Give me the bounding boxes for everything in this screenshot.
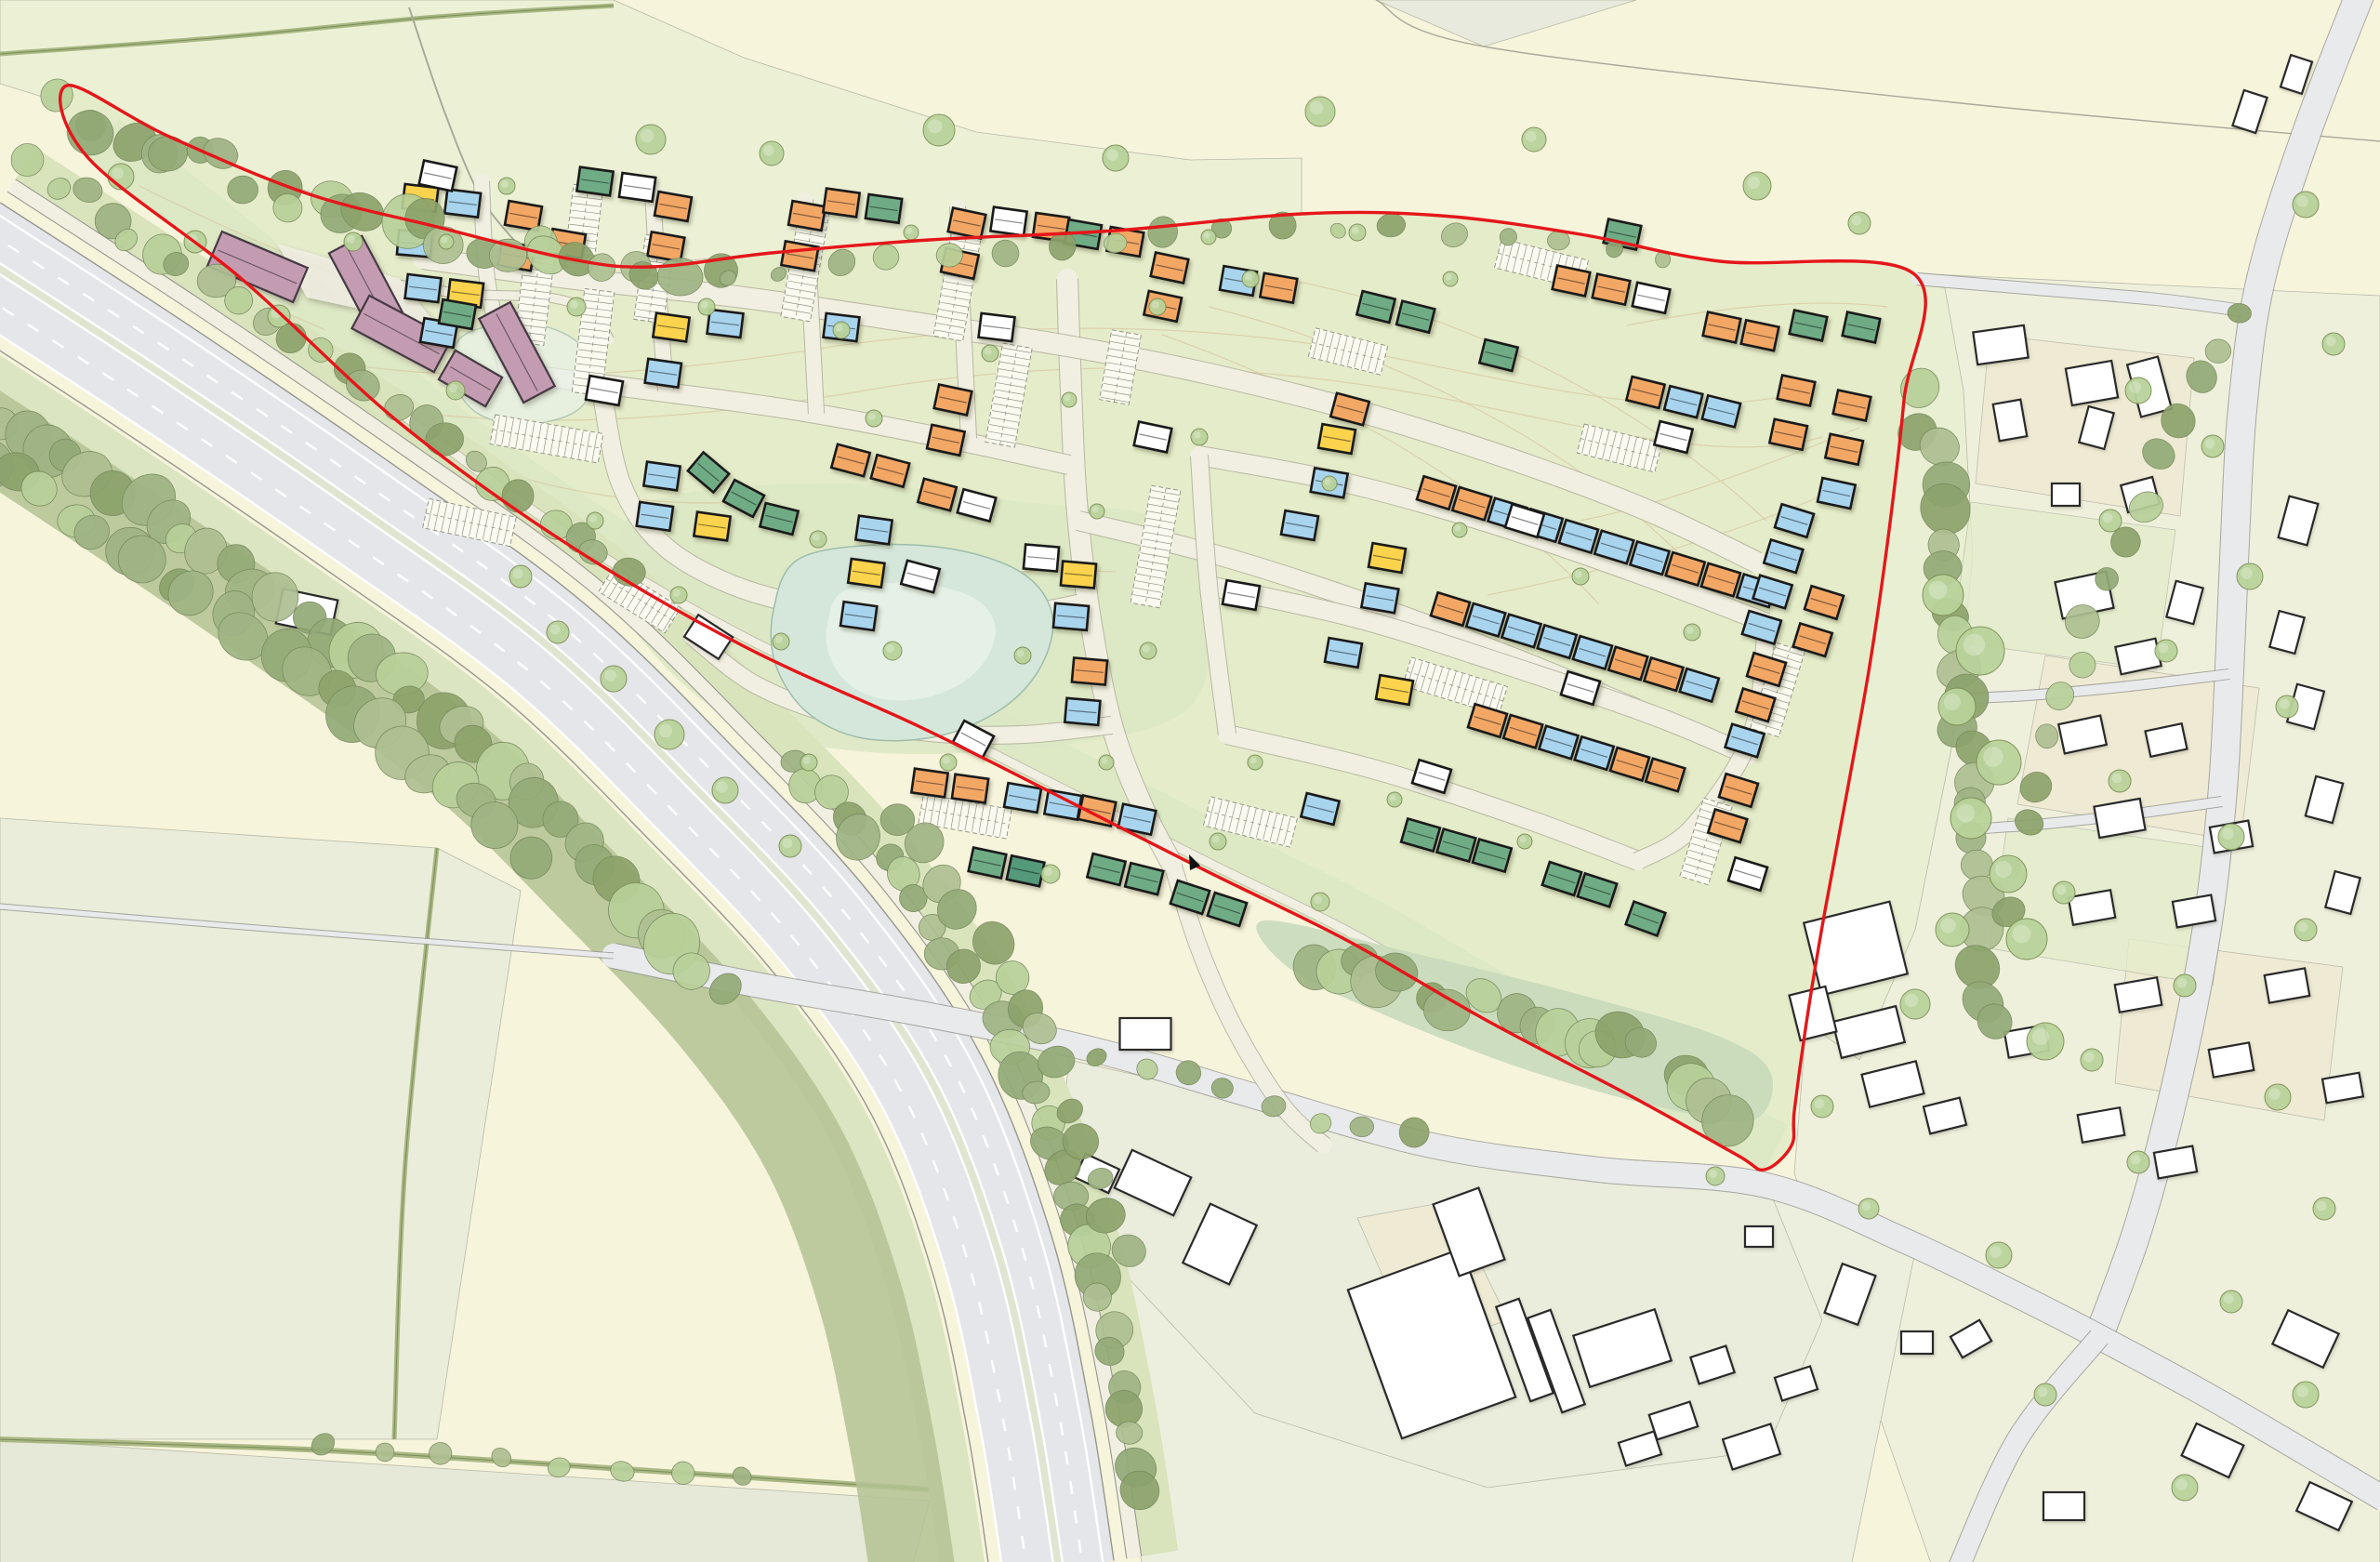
masterplan-map-canvas xyxy=(0,0,2380,1562)
site-masterplan-map xyxy=(0,0,2380,1562)
